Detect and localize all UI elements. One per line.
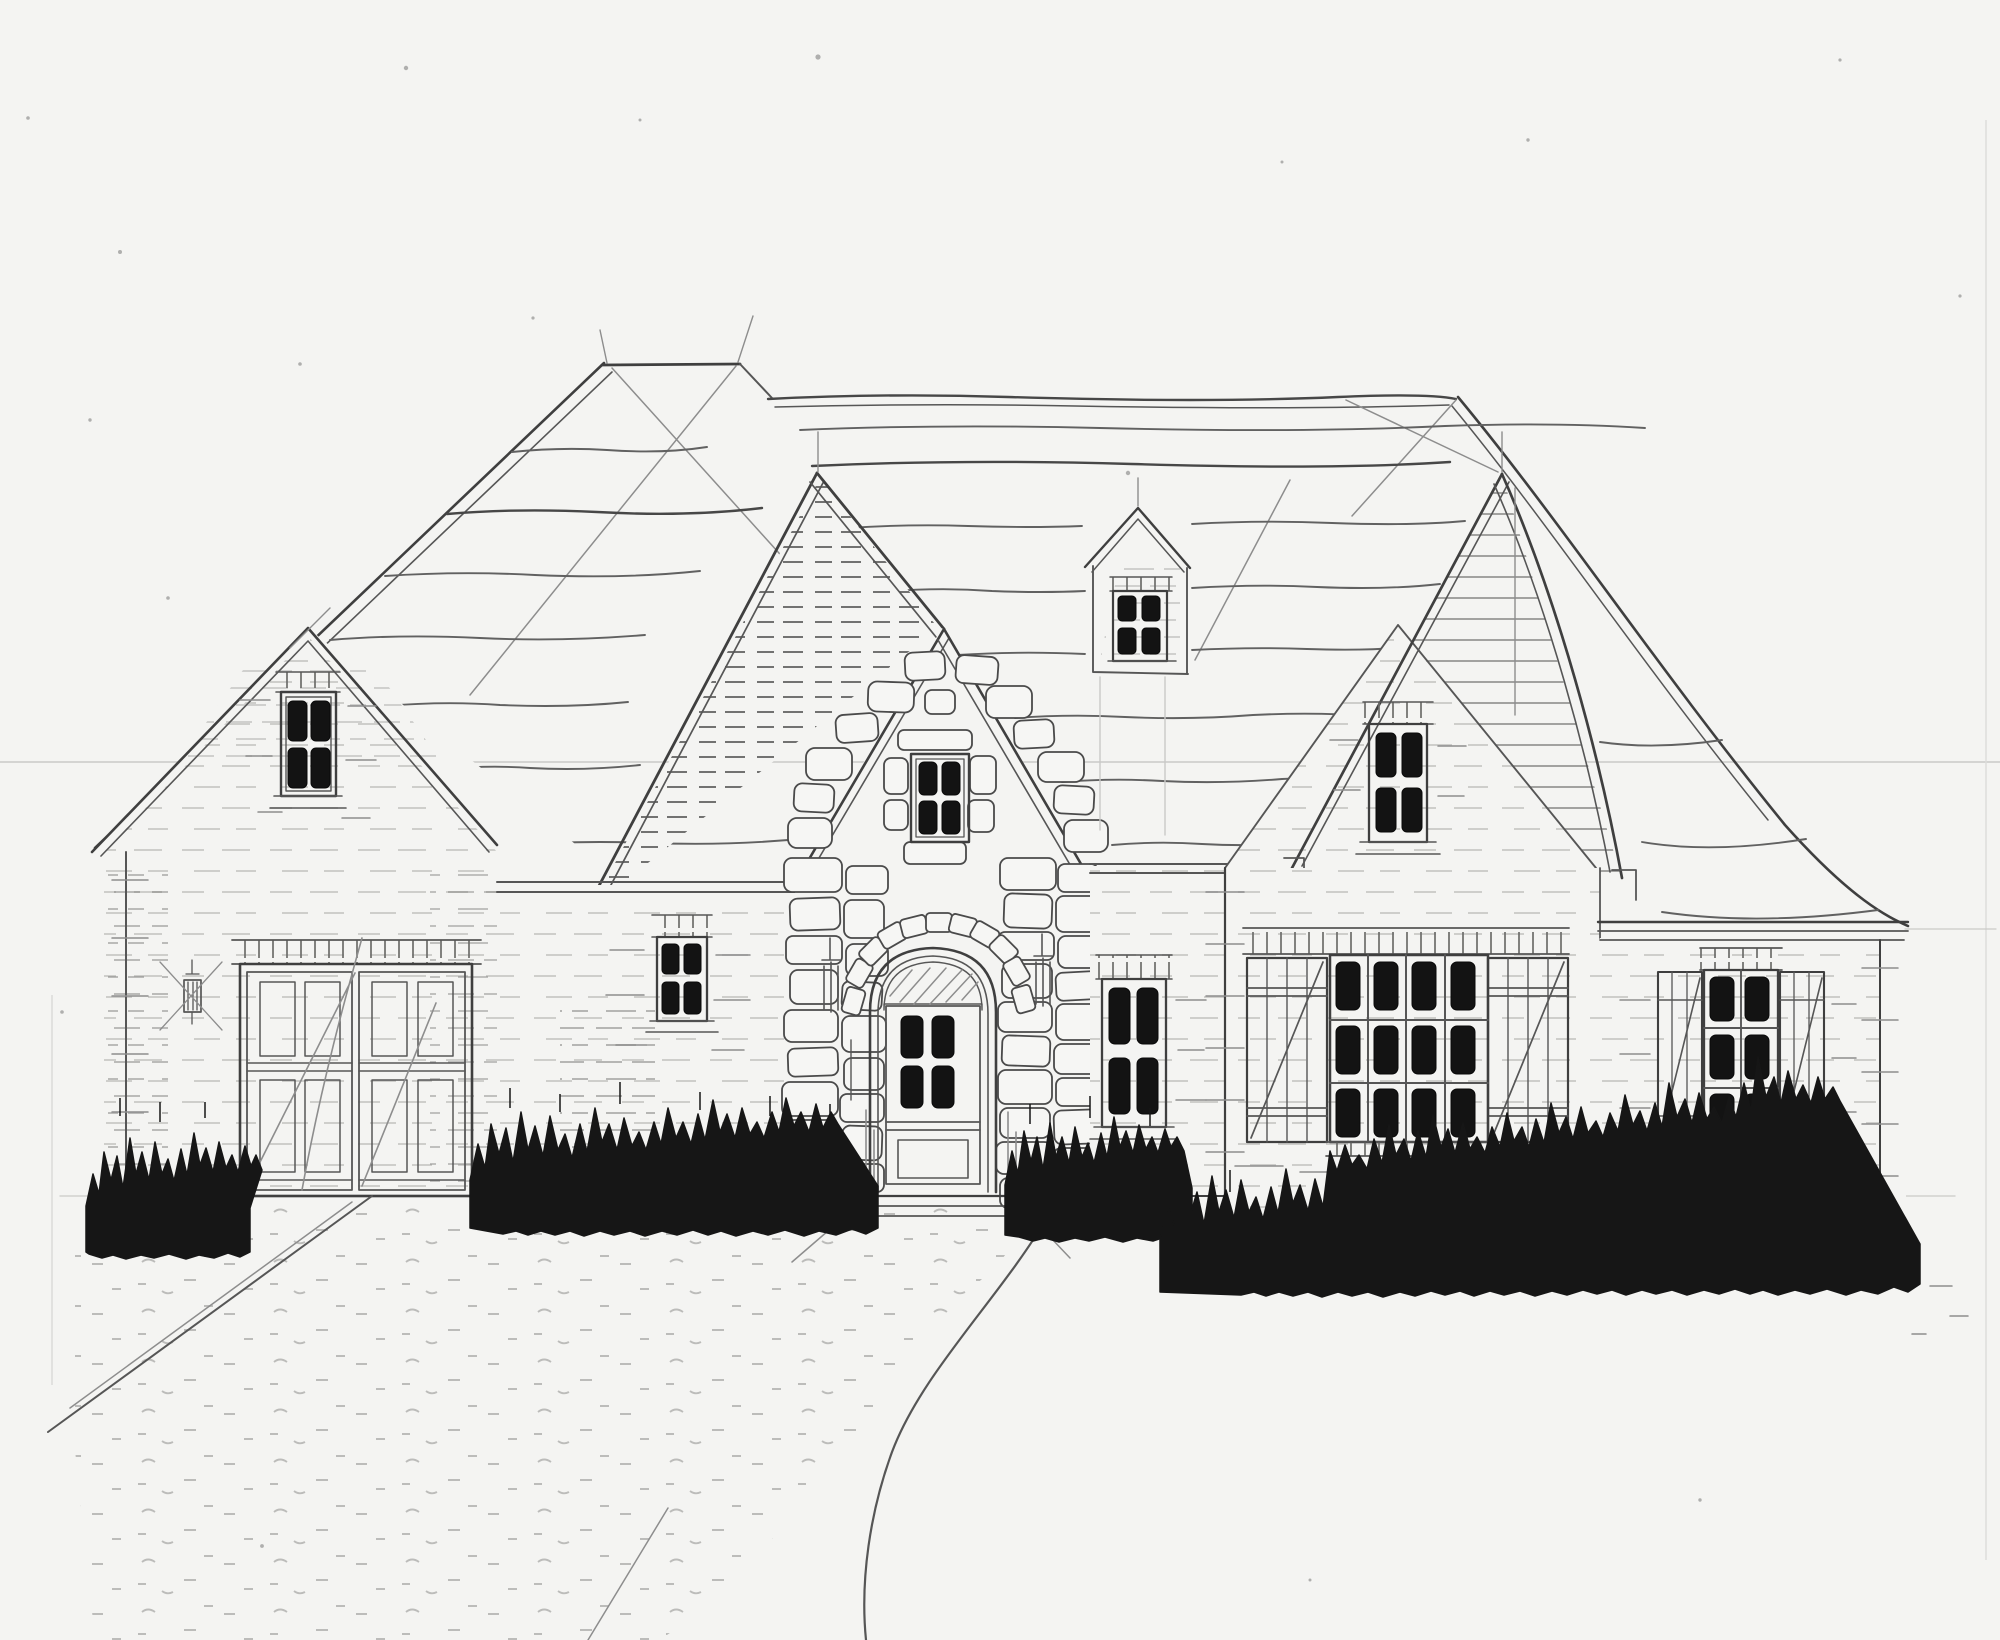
sketch-page xyxy=(0,0,2000,1640)
stone-window-lintel xyxy=(898,730,972,750)
upper-ridge xyxy=(602,364,740,365)
picture-window-header xyxy=(1243,928,1569,954)
house-elevation-sketch xyxy=(0,0,2000,1640)
